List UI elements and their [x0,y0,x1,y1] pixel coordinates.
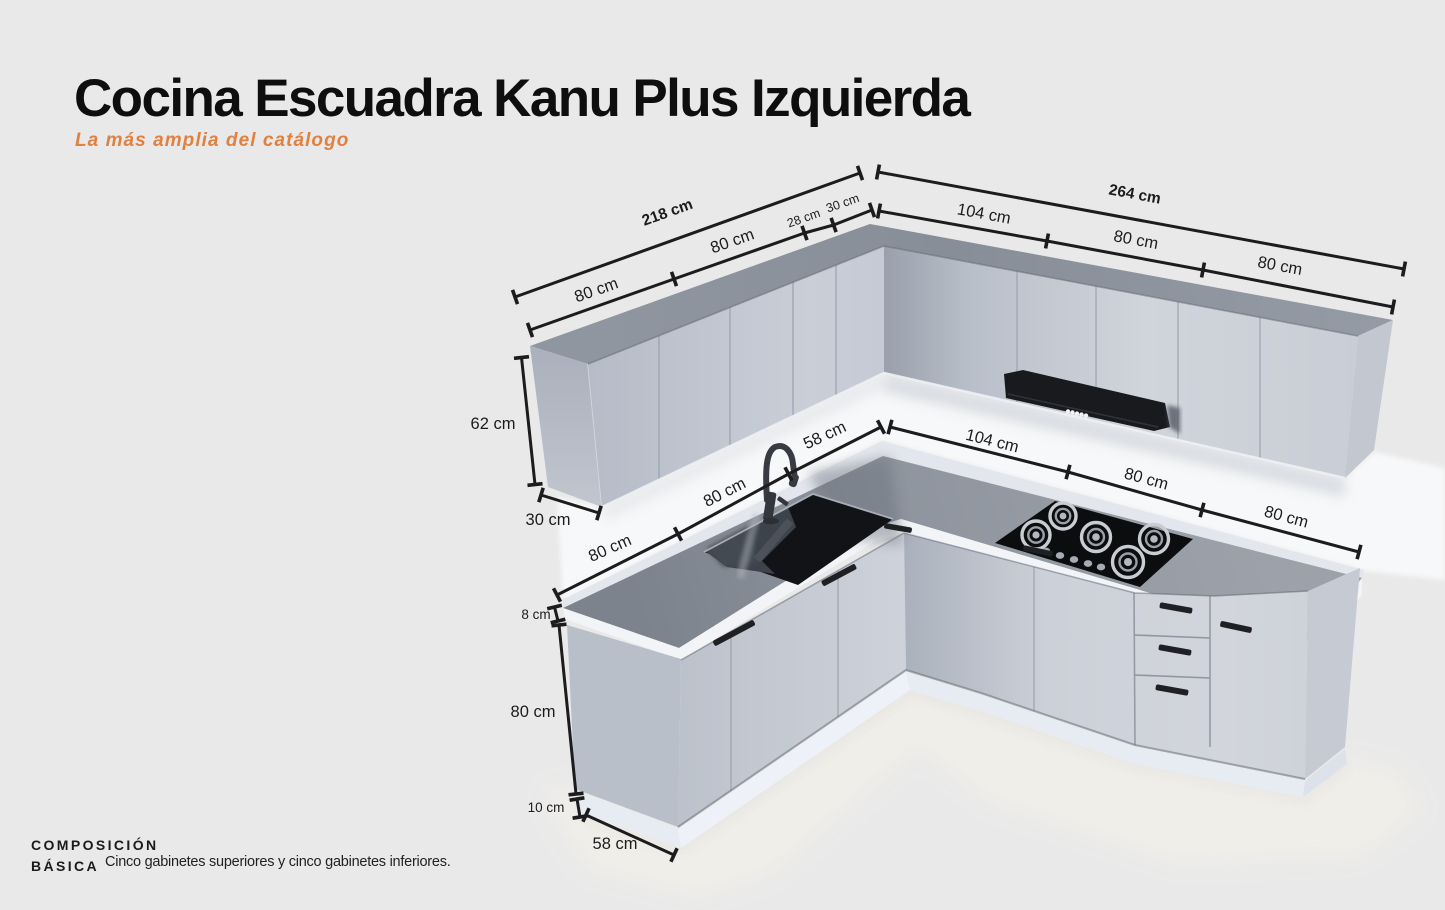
svg-text:30 cm: 30 cm [824,191,861,216]
svg-text:8 cm: 8 cm [521,607,550,622]
svg-text:10 cm: 10 cm [528,800,565,815]
svg-text:30 cm: 30 cm [526,511,571,529]
svg-text:58 cm: 58 cm [593,835,638,853]
svg-text:218 cm: 218 cm [640,196,695,230]
svg-text:264 cm: 264 cm [1107,181,1162,207]
svg-text:80 cm: 80 cm [1256,253,1303,279]
svg-text:80 cm: 80 cm [1112,227,1159,253]
svg-text:80 cm: 80 cm [511,703,556,721]
svg-text:104 cm: 104 cm [956,200,1012,227]
svg-text:62 cm: 62 cm [471,415,516,433]
